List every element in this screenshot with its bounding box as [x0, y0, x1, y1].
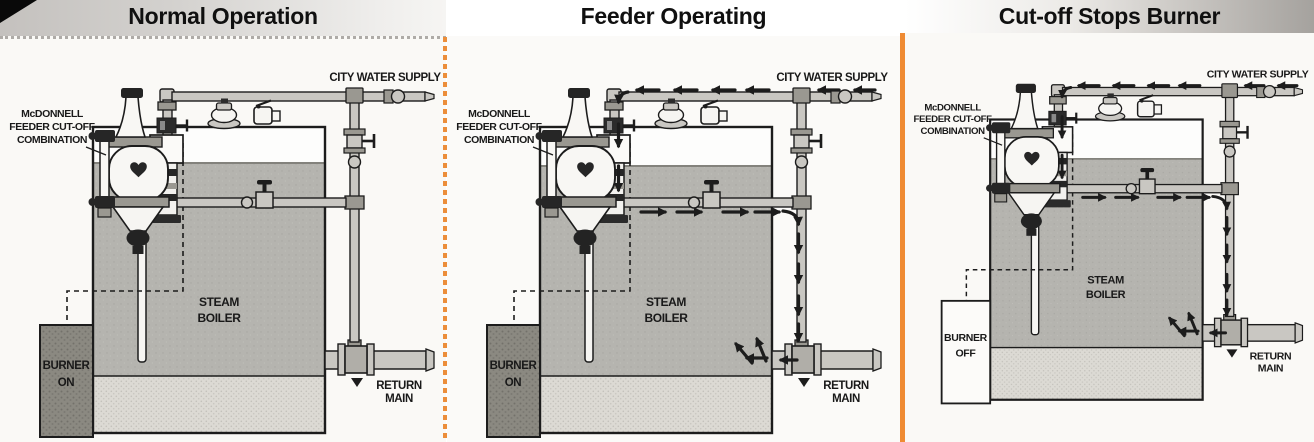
boiler-top-fittings — [655, 99, 727, 129]
svg-text:STEAM: STEAM — [646, 295, 686, 309]
orange-dashed-divider — [443, 37, 447, 442]
svg-text:STEAM: STEAM — [199, 295, 239, 309]
svg-text:COMBINATION: COMBINATION — [464, 134, 534, 146]
svg-text:McDONNELL: McDONNELL — [924, 102, 981, 113]
svg-text:MAIN: MAIN — [385, 393, 413, 405]
svg-text:CITY WATER SUPPLY: CITY WATER SUPPLY — [776, 72, 888, 84]
svg-text:BOILER: BOILER — [198, 311, 242, 325]
svg-text:OFF: OFF — [955, 348, 976, 360]
burner-box: BURNEROFF — [942, 301, 991, 404]
svg-text:BURNER: BURNER — [490, 360, 538, 372]
svg-text:COMBINATION: COMBINATION — [921, 126, 986, 137]
boiler-feeder-infographic: Normal Operation BURNERON — [0, 0, 1314, 442]
svg-text:McDONNELL: McDONNELL — [21, 108, 84, 120]
city-water-down-pipe — [344, 99, 374, 342]
city-water-down-pipe — [791, 99, 821, 342]
svg-text:ON: ON — [505, 377, 522, 389]
burner-box: BURNERON — [40, 325, 93, 437]
dotted-separator — [0, 36, 446, 39]
svg-text:BURNER: BURNER — [43, 360, 91, 372]
svg-text:RETURN: RETURN — [376, 380, 422, 392]
svg-text:BURNER: BURNER — [944, 332, 988, 344]
svg-text:FEEDER CUT-OFF: FEEDER CUT-OFF — [456, 121, 542, 133]
city-water-down-pipe — [1220, 94, 1247, 317]
burner-box: BURNERON — [487, 325, 540, 437]
boiler-diagram: BURNEROFF — [905, 38, 1314, 408]
orange-solid-divider — [900, 33, 905, 442]
svg-text:CITY WATER SUPPLY: CITY WATER SUPPLY — [1207, 68, 1309, 80]
svg-text:FEEDER CUT-OFF: FEEDER CUT-OFF — [914, 114, 993, 125]
svg-text:RETURN: RETURN — [1250, 350, 1292, 362]
panel-cutoff-stops-burner: Cut-off Stops Burner BURNEROFF — [905, 0, 1314, 442]
svg-text:McDONNELL: McDONNELL — [468, 108, 531, 120]
boiler-diagram: BURNERON — [0, 38, 446, 442]
svg-text:CITY WATER SUPPLY: CITY WATER SUPPLY — [329, 72, 441, 84]
boiler-top-fittings — [208, 99, 280, 129]
svg-text:MAIN: MAIN — [1258, 362, 1283, 374]
panel-title: Feeder Operating — [447, 0, 900, 33]
boiler-diagram: BURNERON — [447, 38, 893, 442]
svg-text:ON: ON — [58, 377, 75, 389]
svg-text:RETURN: RETURN — [823, 380, 869, 392]
panel-title: Cut-off Stops Burner — [905, 0, 1314, 33]
svg-text:STEAM: STEAM — [1087, 274, 1124, 286]
svg-text:BOILER: BOILER — [1086, 289, 1126, 301]
svg-text:FEEDER CUT-OFF: FEEDER CUT-OFF — [9, 121, 95, 133]
panel-title: Normal Operation — [0, 0, 446, 33]
panel-feeder-operating: Feeder Operating BURNERON — [447, 0, 900, 442]
svg-text:COMBINATION: COMBINATION — [17, 134, 87, 146]
svg-text:BOILER: BOILER — [645, 311, 689, 325]
panel-normal-operation: Normal Operation BURNERON — [0, 0, 446, 442]
boiler-top-fittings — [1095, 93, 1161, 120]
svg-text:MAIN: MAIN — [832, 393, 860, 405]
